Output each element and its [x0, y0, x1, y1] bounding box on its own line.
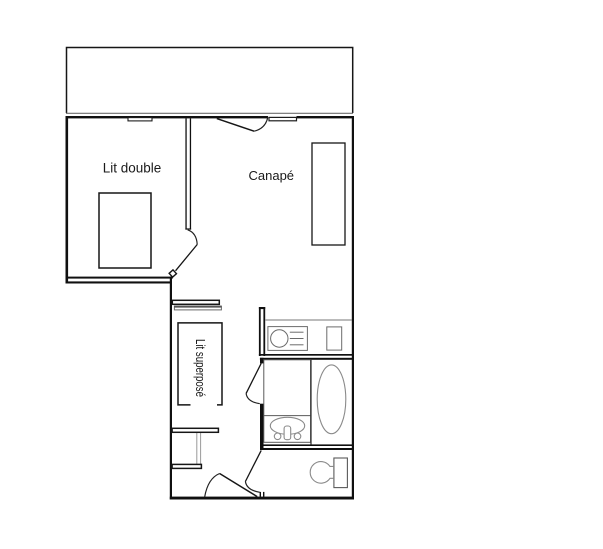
svg-text:Lit superposé: Lit superposé — [193, 339, 207, 397]
svg-text:Lit double: Lit double — [103, 160, 162, 176]
svg-text:Canapé: Canapé — [249, 168, 295, 183]
